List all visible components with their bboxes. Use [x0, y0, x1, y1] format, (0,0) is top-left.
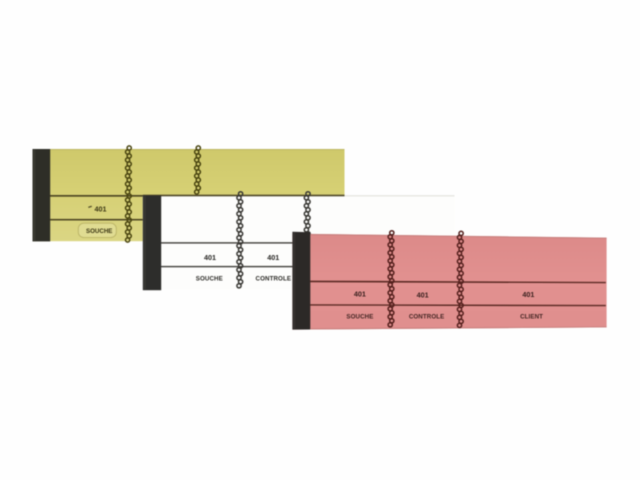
svg-text:SOUCHE: SOUCHE	[346, 314, 373, 321]
svg-text:401: 401	[267, 253, 279, 262]
svg-text:401: 401	[354, 290, 366, 299]
svg-text:SOUCHE: SOUCHE	[86, 228, 112, 235]
svg-text:CLIENT: CLIENT	[520, 313, 543, 320]
svg-text:SOUCHE: SOUCHE	[196, 276, 223, 283]
svg-text:401: 401	[204, 253, 216, 262]
svg-text:401: 401	[417, 290, 429, 299]
svg-text:CONTROLE: CONTROLE	[409, 314, 445, 321]
svg-text:CONTROLE: CONTROLE	[256, 276, 292, 283]
svg-text:401: 401	[522, 290, 534, 299]
svg-text:401: 401	[95, 205, 107, 214]
